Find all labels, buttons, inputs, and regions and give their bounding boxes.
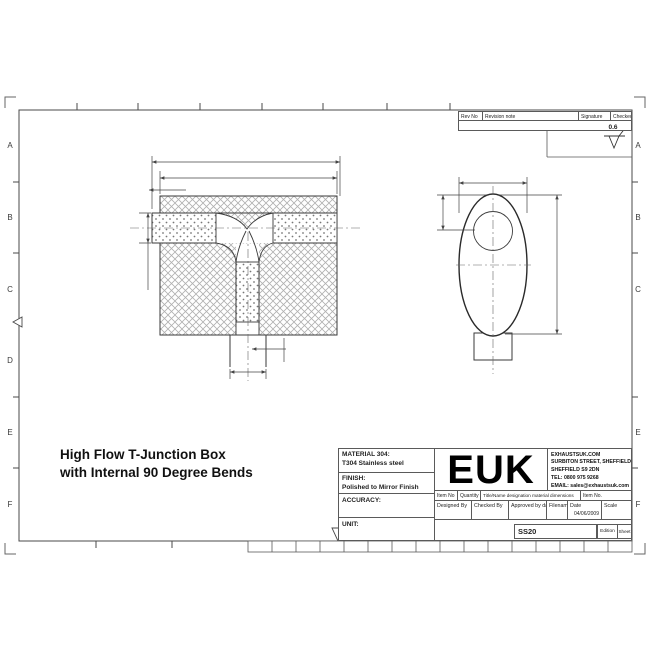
zone-label-right-e: E: [633, 428, 643, 438]
company-address2: SHEFFIELD S9 2DN: [551, 467, 631, 475]
scale-strip: [248, 541, 632, 552]
centering-mark-left-icon: [13, 317, 22, 327]
zone-label-left-d: D: [5, 356, 15, 366]
drawing-title-line2: with Internal 90 Degree Bends: [60, 464, 253, 482]
col-approved-by: Approved by date: [508, 500, 547, 520]
finish-value: Polished to Mirror Finish: [339, 483, 434, 492]
col-date: Date 04/06/2009: [567, 500, 602, 520]
zone-label-left-b: B: [5, 213, 15, 223]
material-value: T304 Stainless steel: [339, 459, 434, 468]
col-designed-by: Designed By: [434, 500, 472, 520]
surface-finish-value: 0.6: [601, 124, 625, 134]
company-logo: EUK: [434, 448, 548, 491]
finish-cell: FINISH: Polished to Mirror Finish: [338, 472, 435, 494]
side-view: [437, 177, 562, 374]
col-scale: Scale: [601, 500, 632, 520]
drawing-title: High Flow T-Junction Box with Internal 9…: [60, 446, 253, 481]
zone-label-right-c: C: [633, 285, 643, 295]
unit-cell: UNIT:: [338, 517, 435, 541]
zone-label-left-a: A: [5, 141, 15, 151]
zone-label-right-f: F: [633, 500, 643, 510]
col-filename: Filename: [546, 500, 568, 520]
zone-label-left-f: F: [5, 500, 15, 510]
date-label: Date: [570, 503, 581, 509]
drawing-sheet: A B C D E F A B C E F Rev No Revision no…: [0, 0, 650, 650]
drawing-title-line1: High Flow T-Junction Box: [60, 446, 253, 464]
company-website: EXHAUSTSUK.COM: [551, 452, 631, 460]
zone-label-left-c: C: [5, 285, 15, 295]
zone-label-right-a: A: [633, 141, 643, 151]
company-info-cell: EXHAUSTSUK.COM SURBITON STREET, SHEFFIEL…: [547, 448, 632, 491]
sheet-cell: Sheet: [617, 524, 632, 539]
date-value: 04/06/2009: [574, 511, 599, 517]
finish-label: FINISH:: [339, 473, 434, 483]
front-view: [130, 156, 362, 381]
sheet-graphics: [0, 0, 650, 650]
material-cell: MATERIAL 304: T304 Stainless steel: [338, 448, 435, 473]
col-checked-by: Checked By: [471, 500, 509, 520]
drawing-number: SS20: [514, 524, 597, 539]
surface-finish-box: [547, 131, 632, 157]
accuracy-label: ACCURACY:: [339, 494, 434, 505]
company-tel: TEL: 0800 975 9268: [551, 475, 631, 483]
zone-label-right-b: B: [633, 213, 643, 223]
material-label: MATERIAL 304:: [339, 449, 434, 459]
accuracy-cell: ACCURACY:: [338, 493, 435, 518]
company-address1: SURBITON STREET, SHEFFIELD IND EST.,: [551, 459, 631, 467]
edition-cell: Edition: [597, 524, 618, 539]
zone-label-left-e: E: [5, 428, 15, 438]
unit-label: UNIT:: [339, 518, 434, 529]
